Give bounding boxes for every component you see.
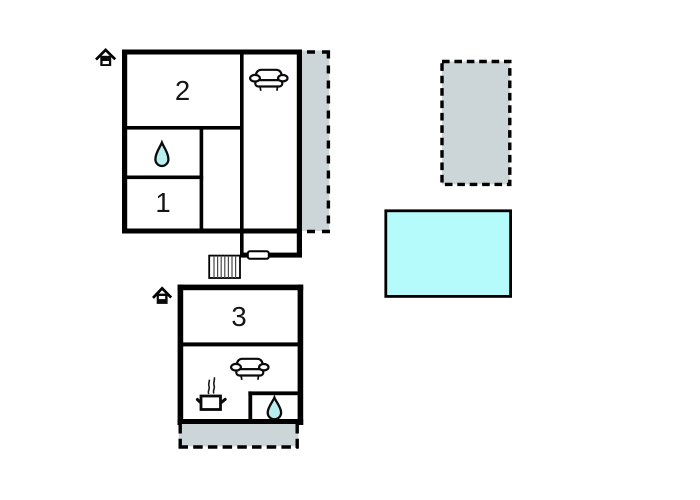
svg-text:3: 3 (231, 301, 246, 332)
svg-text:1: 1 (155, 187, 170, 218)
svg-text:2: 2 (175, 75, 190, 106)
